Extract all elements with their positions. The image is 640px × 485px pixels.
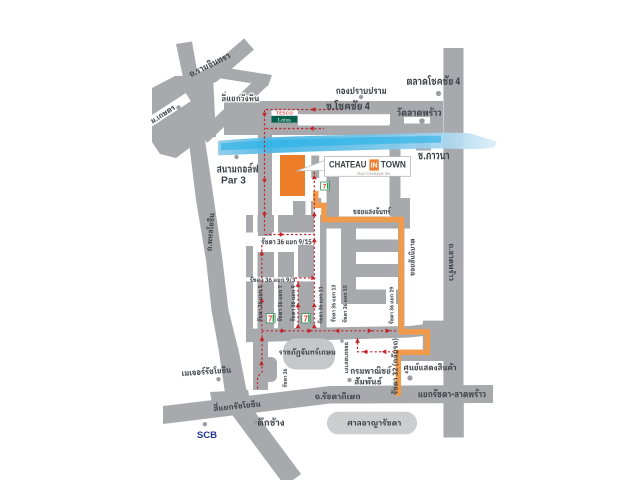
svg-text:Lotus: Lotus bbox=[278, 117, 291, 123]
svg-text:CHATEAU: CHATEAU bbox=[329, 159, 367, 170]
svg-text:RATCHADA 36: RATCHADA 36 bbox=[357, 172, 390, 176]
svg-text:IN: IN bbox=[371, 160, 378, 169]
svg-text:7: 7 bbox=[303, 314, 308, 323]
svg-text:TOWN: TOWN bbox=[381, 159, 406, 170]
svg-text:Par 3: Par 3 bbox=[221, 176, 246, 187]
svg-text:TESCO: TESCO bbox=[276, 110, 293, 115]
svg-text:SCB: SCB bbox=[197, 430, 217, 441]
svg-text:7: 7 bbox=[268, 314, 273, 323]
svg-text:7: 7 bbox=[323, 184, 327, 191]
